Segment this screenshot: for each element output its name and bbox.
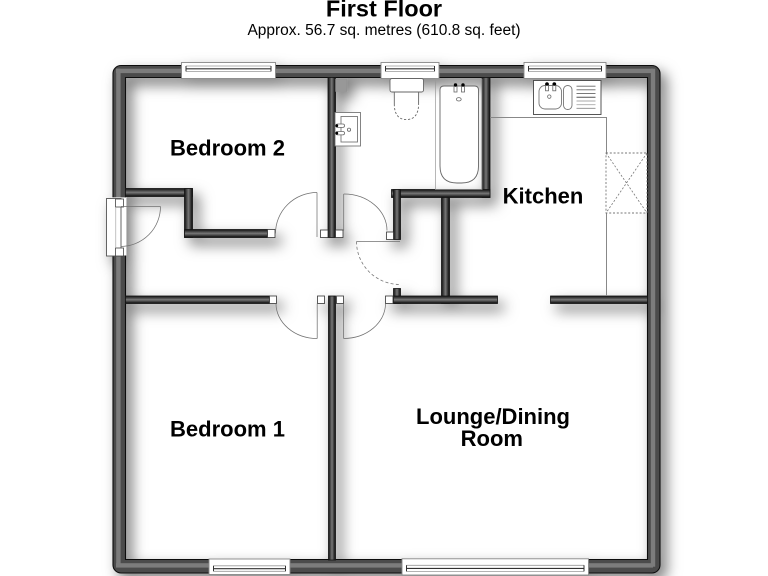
svg-text:Bedroom 1: Bedroom 1 [170,417,285,442]
svg-text:First Floor: First Floor [326,0,442,22]
svg-text:Kitchen: Kitchen [503,184,584,209]
svg-text:Bedroom 2: Bedroom 2 [170,136,285,161]
svg-text:Approx. 56.7 sq. metres (610.8: Approx. 56.7 sq. metres (610.8 sq. feet) [247,22,520,39]
svg-text:Room: Room [461,426,523,451]
